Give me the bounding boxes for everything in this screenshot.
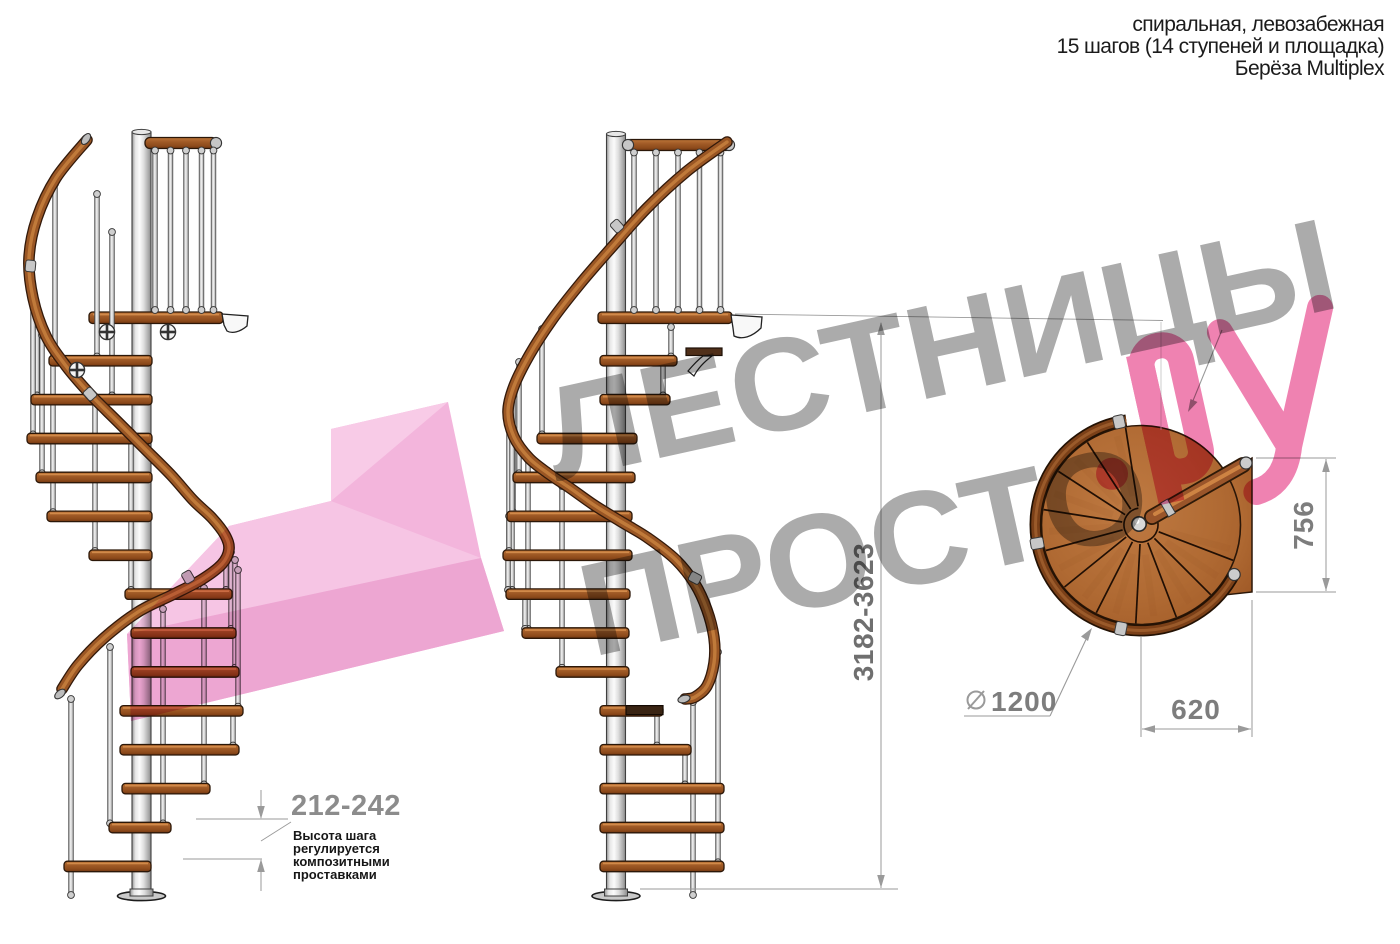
svg-text:проставками: проставками (293, 867, 377, 882)
svg-text:спиральная, левозабежная: спиральная, левозабежная (1132, 13, 1384, 36)
svg-text:212-242: 212-242 (291, 790, 401, 822)
svg-text:756: 756 (1288, 500, 1319, 550)
svg-text:620: 620 (1171, 694, 1221, 725)
svg-text:1200: 1200 (991, 686, 1057, 717)
svg-text:Берёза Multiplex: Берёза Multiplex (1235, 57, 1385, 80)
svg-text:15 шагов (14 ступеней и площад: 15 шагов (14 ступеней и площадка) (1057, 35, 1384, 58)
